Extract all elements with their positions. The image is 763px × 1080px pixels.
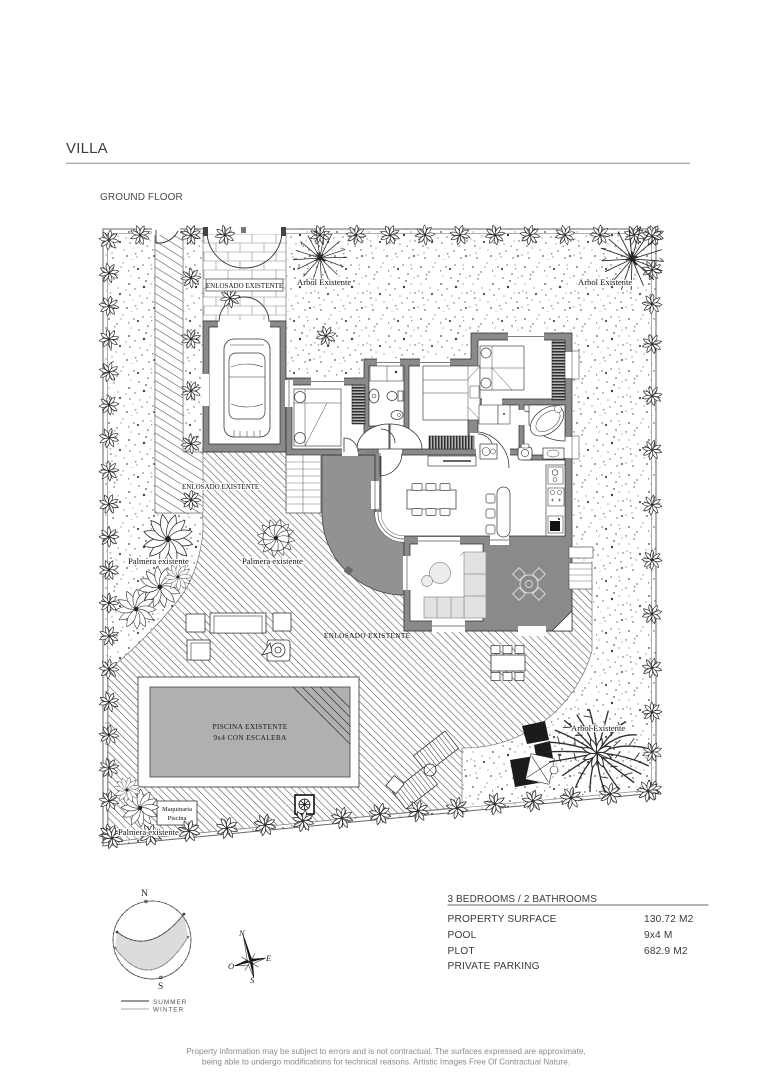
svg-text:PLOT: PLOT — [448, 946, 475, 957]
svg-text:Piscina: Piscina — [168, 815, 187, 822]
svg-text:130.72 M2: 130.72 M2 — [644, 914, 694, 925]
svg-text:E: E — [265, 953, 272, 963]
svg-text:Arbol Existente: Arbol Existente — [578, 277, 632, 287]
svg-text:PISCINA EXISTENTE: PISCINA EXISTENTE — [212, 722, 287, 731]
svg-text:Arbol Existente: Arbol Existente — [571, 723, 625, 733]
svg-text:Arbol Existente: Arbol Existente — [297, 277, 351, 287]
svg-text:ENLOSADO EXISTENTE: ENLOSADO EXISTENTE — [324, 632, 411, 640]
svg-text:WINTER: WINTER — [153, 1007, 184, 1014]
svg-text:Maquinaria: Maquinaria — [162, 806, 192, 813]
svg-text:VILLA: VILLA — [66, 140, 108, 157]
svg-text:9x4 M: 9x4 M — [644, 930, 673, 941]
svg-text:S: S — [158, 982, 163, 992]
svg-text:O: O — [228, 961, 234, 971]
svg-text:3 BEDROOMS / 2 BATHROOMS: 3 BEDROOMS / 2 BATHROOMS — [448, 894, 598, 905]
svg-text:PRIVATE PARKING: PRIVATE PARKING — [448, 961, 540, 972]
svg-text:POOL: POOL — [448, 930, 477, 941]
svg-text:ENLOSADO EXISTENTE: ENLOSADO EXISTENTE — [206, 282, 283, 290]
svg-text:Palmera existente: Palmera existente — [128, 556, 189, 566]
svg-text:Palmera existente: Palmera existente — [242, 556, 303, 566]
svg-text:N: N — [141, 889, 148, 899]
svg-text:ENLOSADO EXISTENTE: ENLOSADO EXISTENTE — [182, 483, 259, 491]
svg-text:SUMMER: SUMMER — [153, 999, 187, 1006]
svg-text:682.9 M2: 682.9 M2 — [644, 946, 688, 957]
svg-text:Palmera existente: Palmera existente — [118, 827, 179, 837]
svg-text:9x4 CON ESCALERA: 9x4 CON ESCALERA — [213, 733, 287, 742]
svg-text:GROUND FLOOR: GROUND FLOOR — [100, 192, 183, 203]
svg-text:PROPERTY SURFACE: PROPERTY SURFACE — [448, 914, 557, 925]
svg-text:Property information may be su: Property information may be subject to e… — [186, 1047, 585, 1056]
svg-text:being able to undergo modifica: being able to undergo modifications for … — [202, 1058, 570, 1067]
